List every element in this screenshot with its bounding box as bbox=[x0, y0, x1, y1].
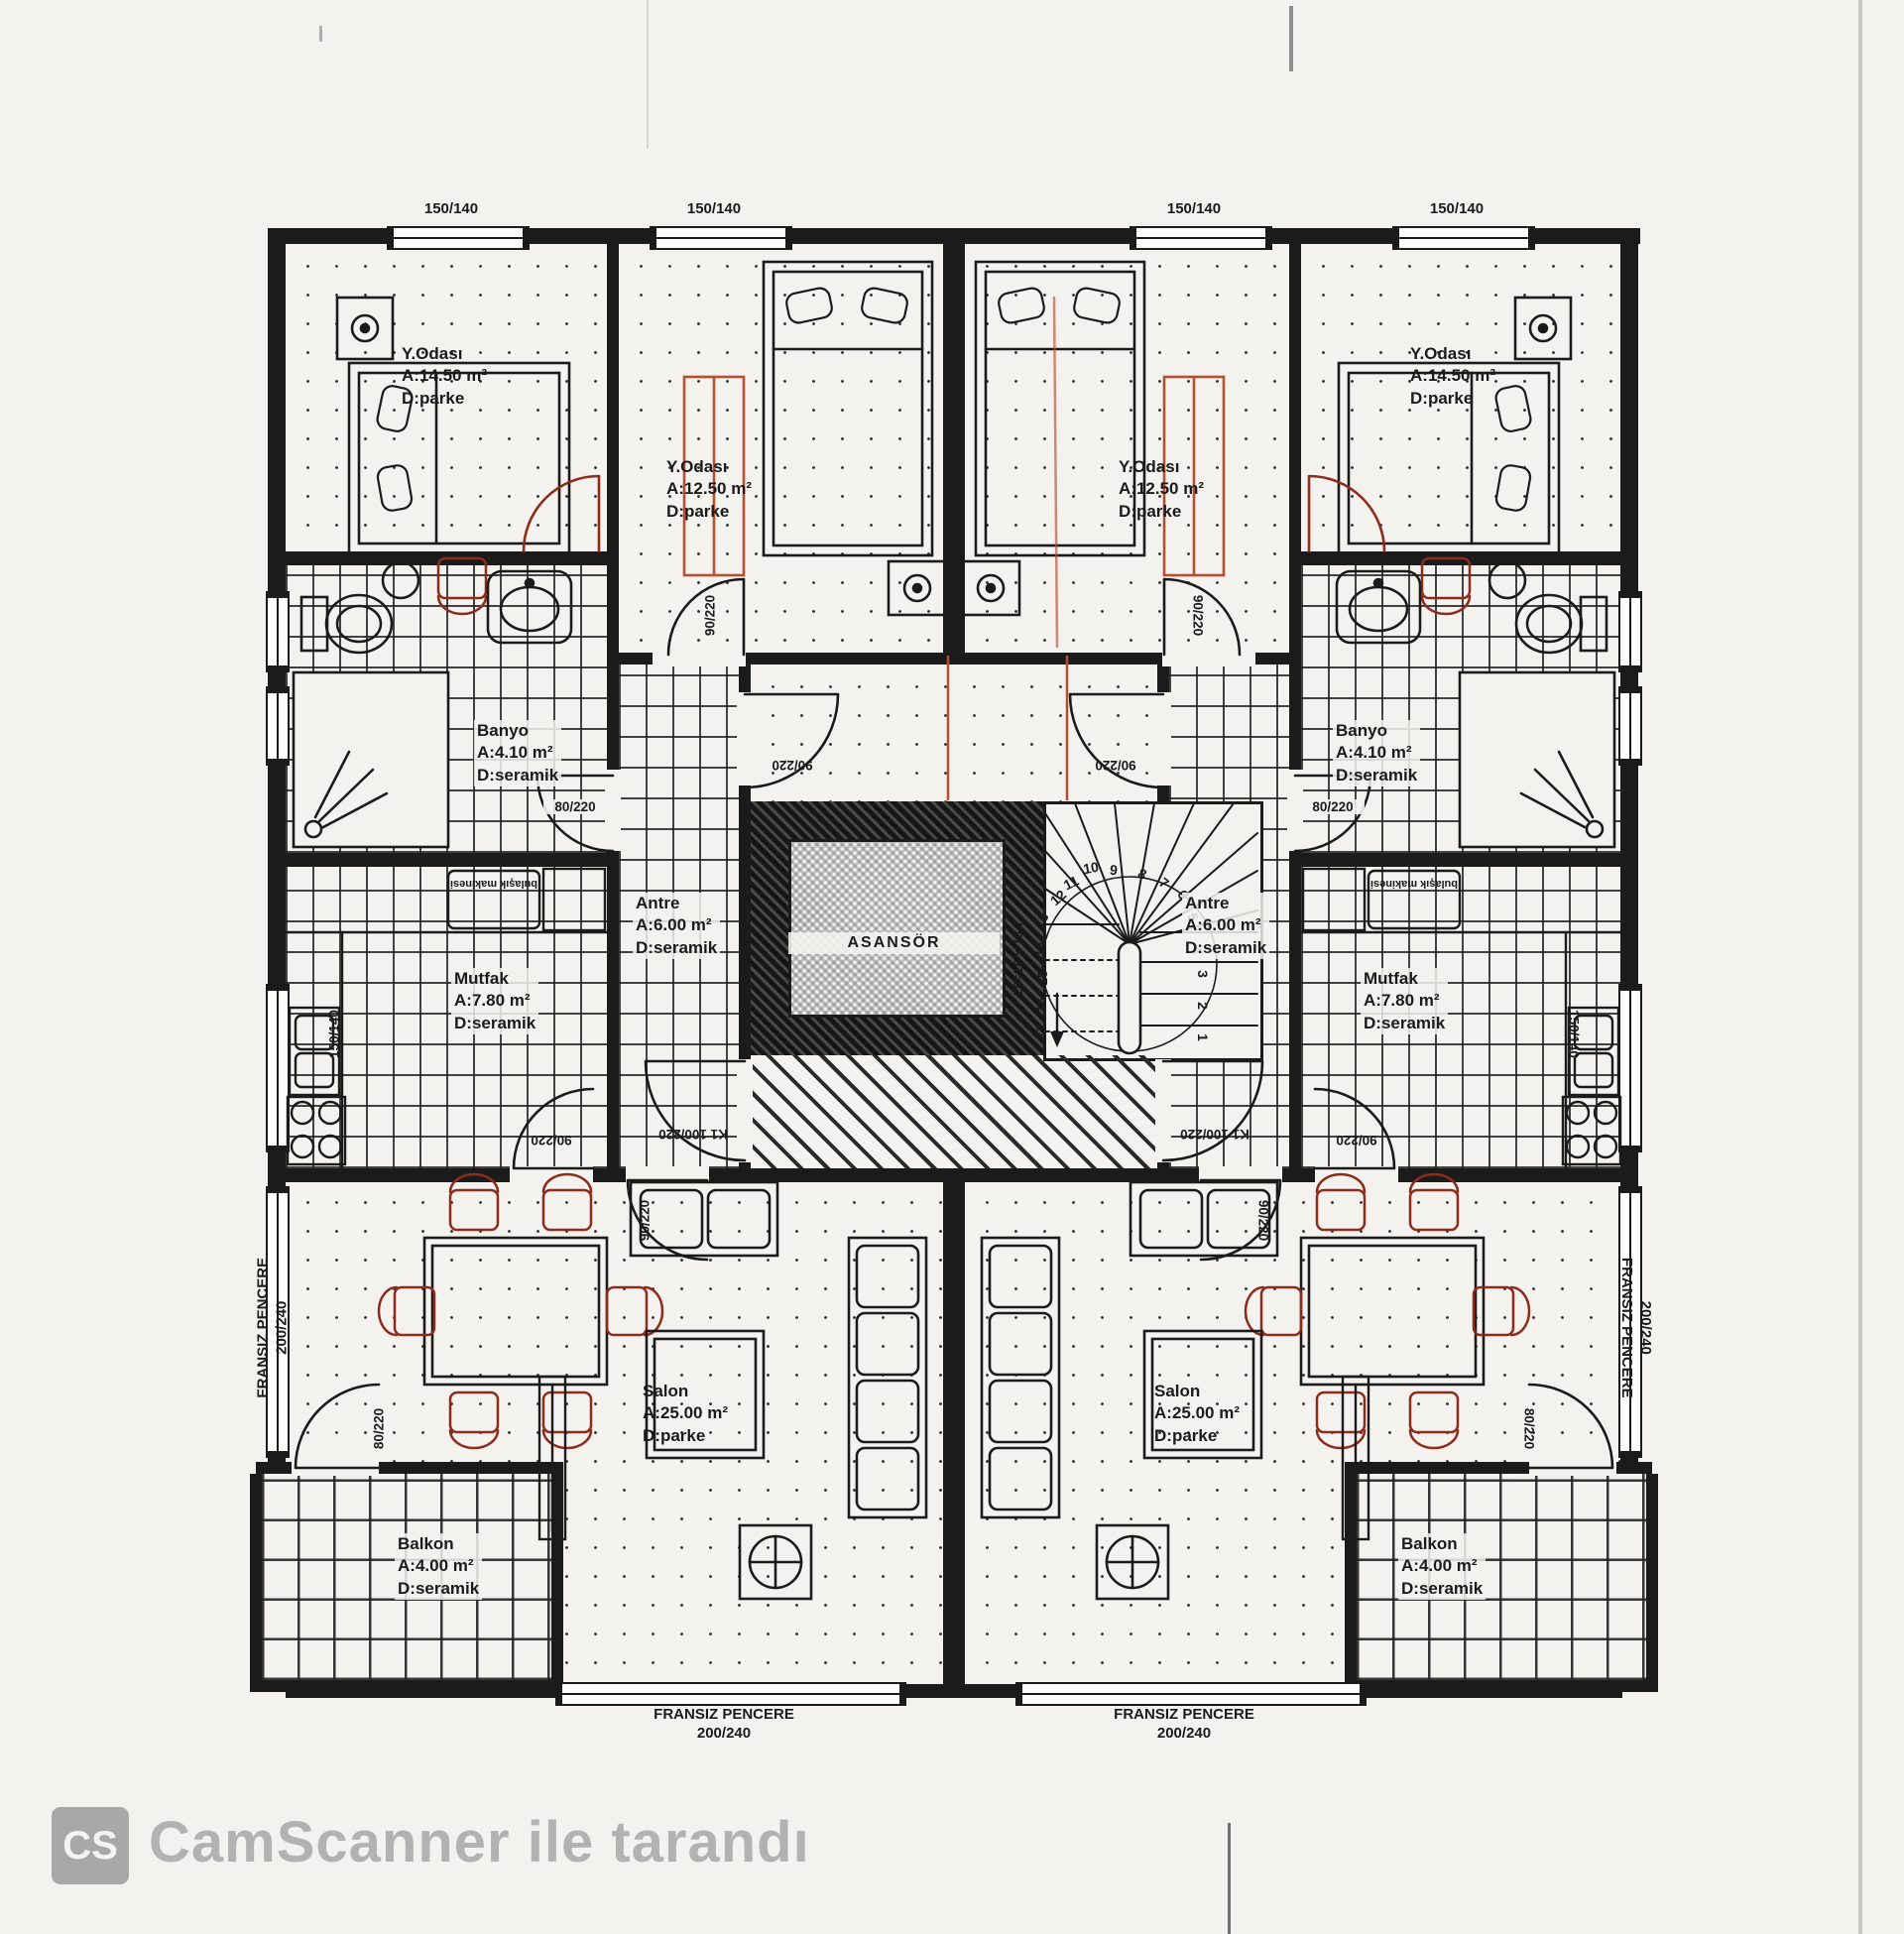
svg-text:15: 15 bbox=[1034, 970, 1050, 986]
room-label-banyo: BanyoA:4.10 m²D:seramik bbox=[1333, 720, 1420, 786]
door-label: 90/220 bbox=[703, 583, 718, 649]
stair-dimension-note: 28=18 x 15,7 bbox=[1011, 920, 1025, 996]
room-label-bedroom: Y.OdasıA:14.50 m²D:parke bbox=[1410, 343, 1495, 410]
french-window-label: FRANSIZ PENCERE200/240 bbox=[605, 1706, 843, 1744]
scanned-floor-plan: ASANSÖR bbox=[0, 0, 1904, 1934]
camscanner-logo: CS bbox=[52, 1807, 129, 1884]
svg-text:2: 2 bbox=[1195, 1002, 1211, 1010]
door-label: 80/220 bbox=[1301, 799, 1365, 814]
door-label: 90/220 bbox=[1191, 583, 1206, 649]
scan-artifact bbox=[319, 26, 322, 42]
room-label-balkon: BalkonA:4.00 m²D:seramik bbox=[395, 1533, 482, 1600]
scan-artifact bbox=[1228, 1823, 1231, 1934]
red-marking-line bbox=[948, 298, 1067, 799]
window-label: 150/140 bbox=[650, 200, 778, 217]
french-window-label: 200/240FRANSIZ PENCERE bbox=[1616, 1204, 1654, 1452]
door-label: 80/220 bbox=[372, 1396, 387, 1462]
room-label-salon: SalonA:25.00 m²D:parke bbox=[643, 1381, 728, 1447]
svg-text:14: 14 bbox=[1032, 941, 1048, 957]
door-label: 80/220 bbox=[1522, 1396, 1537, 1462]
room-label-bedroom: Y.OdasıA:12.50 m²D:parke bbox=[666, 456, 752, 523]
room-label-bedroom: Y.OdasıA:12.50 m²D:parke bbox=[1119, 456, 1204, 523]
plan-linework: 1 2 3 4 5 6 7 8 9 10 11 12 13 14 15 16 1… bbox=[0, 0, 1904, 1934]
room-label-mutfak: MutfakA:7.80 m²D:seramik bbox=[1361, 968, 1448, 1034]
window-label: 150/140 bbox=[1567, 980, 1582, 1089]
scan-artifact bbox=[1858, 0, 1862, 1934]
french-window-label: FRANSIZ PENCERE200/240 bbox=[1065, 1706, 1303, 1744]
svg-text:17: 17 bbox=[1033, 1024, 1049, 1039]
room-label-balkon: BalkonA:4.00 m²D:seramik bbox=[1398, 1533, 1486, 1600]
window-label: 150/140 bbox=[1392, 200, 1521, 217]
chair bbox=[438, 558, 1470, 614]
door-label: 80/220 bbox=[543, 799, 607, 814]
svg-text:3: 3 bbox=[1195, 970, 1211, 978]
svg-text:16: 16 bbox=[1033, 997, 1049, 1013]
scan-artifact bbox=[1289, 6, 1293, 71]
door-label: 90/220 bbox=[760, 758, 825, 773]
bed bbox=[764, 262, 932, 555]
svg-text:1: 1 bbox=[1195, 1033, 1211, 1041]
door-label-entry: K1 100/220 bbox=[645, 1127, 742, 1142]
door-label: 90/220 bbox=[1256, 1188, 1271, 1254]
svg-text:10: 10 bbox=[1082, 859, 1100, 877]
room-label-antre: AntreA:6.00 m²D:seramik bbox=[633, 893, 720, 959]
dishwasher-label: bulaşık makinesi bbox=[448, 877, 539, 890]
door-label: 90/220 bbox=[510, 1133, 593, 1148]
room-label-banyo: BanyoA:4.10 m²D:seramik bbox=[474, 720, 561, 786]
room-label-mutfak: MutfakA:7.80 m²D:seramik bbox=[451, 968, 538, 1034]
window-label: 150/140 bbox=[327, 980, 342, 1089]
door-label: 90/220 bbox=[1083, 758, 1148, 773]
watermark-text: CamScanner ile tarandı bbox=[149, 1809, 810, 1875]
svg-text:9: 9 bbox=[1109, 862, 1119, 879]
window-label: 150/140 bbox=[387, 200, 516, 217]
door-label: 90/220 bbox=[1315, 1133, 1398, 1148]
scan-artifact bbox=[647, 0, 649, 149]
sofa bbox=[631, 1182, 1277, 1517]
svg-text:13: 13 bbox=[1030, 909, 1052, 930]
french-window-label: FRANSIZ PENCERE200/240 bbox=[254, 1204, 292, 1452]
room-label-antre: AntreA:6.00 m²D:seramik bbox=[1182, 893, 1269, 959]
door-arc-red bbox=[524, 476, 1384, 551]
svg-text:11: 11 bbox=[1061, 872, 1082, 893]
door-label-entry: K1 100/220 bbox=[1166, 1127, 1263, 1142]
nightstand bbox=[337, 298, 1571, 615]
window-label: 150/140 bbox=[1130, 200, 1258, 217]
door-label: 90/220 bbox=[638, 1188, 653, 1254]
room-label-salon: SalonA:25.00 m²D:parke bbox=[1154, 1381, 1240, 1447]
svg-text:8: 8 bbox=[1135, 865, 1149, 883]
dining-table bbox=[424, 1238, 1484, 1385]
room-label-bedroom: Y.OdasıA:14.50 m²D:parke bbox=[402, 343, 487, 410]
toilet bbox=[301, 595, 1606, 653]
dishwasher-label: bulaşık makinesi bbox=[1368, 877, 1460, 890]
stove-symbol bbox=[740, 1525, 1168, 1599]
sink bbox=[488, 571, 1420, 643]
